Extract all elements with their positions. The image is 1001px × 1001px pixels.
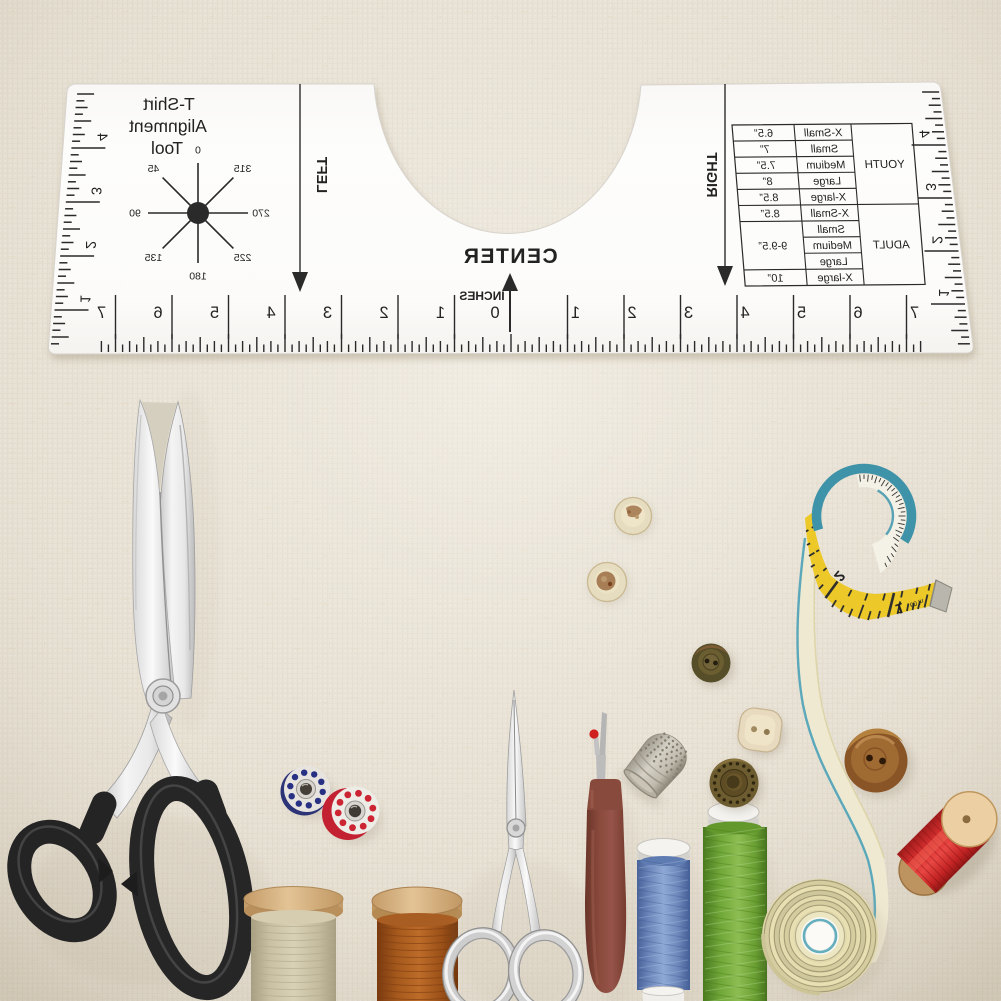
svg-text:6.5”: 6.5” — [753, 128, 773, 140]
svg-text:1: 1 — [571, 304, 580, 322]
svg-text:T-Shirt: T-Shirt — [143, 94, 195, 114]
svg-text:X-large: X-large — [817, 272, 853, 284]
svg-text:YOUTH: YOUTH — [864, 159, 905, 171]
svg-text:Alignment: Alignment — [129, 116, 207, 136]
svg-text:0: 0 — [195, 145, 201, 157]
svg-text:3: 3 — [922, 183, 938, 191]
svg-text:LEFT: LEFT — [313, 157, 329, 193]
svg-text:7: 7 — [910, 304, 919, 322]
svg-text:5: 5 — [210, 304, 219, 322]
svg-text:315: 315 — [234, 163, 252, 175]
svg-text:Small: Small — [817, 224, 845, 236]
svg-text:3: 3 — [88, 187, 104, 195]
svg-text:CENTER: CENTER — [462, 245, 557, 268]
svg-text:6: 6 — [853, 304, 862, 322]
svg-text:1: 1 — [935, 289, 951, 297]
svg-text:2: 2 — [627, 304, 636, 322]
svg-text:Large: Large — [813, 175, 842, 187]
svg-text:270: 270 — [252, 208, 270, 220]
svg-text:1: 1 — [436, 304, 445, 322]
svg-text:INCHES: INCHES — [459, 289, 504, 303]
svg-text:Medium: Medium — [812, 240, 852, 252]
svg-text:X-large: X-large — [810, 192, 846, 204]
svg-text:7.5”: 7.5” — [756, 160, 776, 172]
svg-text:180: 180 — [189, 271, 207, 283]
svg-text:5: 5 — [797, 304, 806, 322]
svg-text:RIGHT: RIGHT — [703, 152, 719, 197]
svg-text:0: 0 — [490, 304, 499, 322]
svg-text:4: 4 — [266, 304, 275, 322]
svg-text:4: 4 — [740, 304, 749, 322]
svg-text:2: 2 — [929, 236, 945, 244]
svg-text:90: 90 — [129, 208, 141, 220]
svg-text:2: 2 — [379, 304, 388, 322]
svg-text:8.5”: 8.5” — [760, 208, 780, 220]
svg-text:3: 3 — [684, 304, 693, 322]
svg-text:10”: 10” — [767, 273, 784, 285]
svg-text:1: 1 — [76, 295, 92, 303]
svg-text:ADULT: ADULT — [873, 239, 911, 251]
svg-text:8.5”: 8.5” — [759, 192, 779, 204]
svg-text:X-Small: X-Small — [810, 208, 849, 220]
svg-text:4: 4 — [916, 130, 932, 138]
svg-text:Tool: Tool — [151, 138, 183, 158]
svg-text:4: 4 — [93, 133, 109, 141]
svg-text:45: 45 — [147, 163, 159, 175]
svg-text:Small: Small — [810, 143, 838, 155]
svg-text:3: 3 — [323, 304, 332, 322]
svg-text:135: 135 — [145, 252, 163, 264]
svg-text:Medium: Medium — [806, 159, 846, 171]
svg-text:2: 2 — [82, 241, 98, 249]
svg-text:X-Small: X-Small — [803, 127, 842, 139]
svg-text:8”: 8” — [762, 176, 773, 188]
svg-text:9-9.5”: 9-9.5” — [758, 240, 788, 252]
svg-text:6: 6 — [153, 304, 162, 322]
svg-text:7: 7 — [97, 304, 106, 322]
svg-text:225: 225 — [234, 252, 252, 264]
svg-text:7”: 7” — [759, 144, 770, 156]
svg-text:Large: Large — [819, 256, 848, 268]
